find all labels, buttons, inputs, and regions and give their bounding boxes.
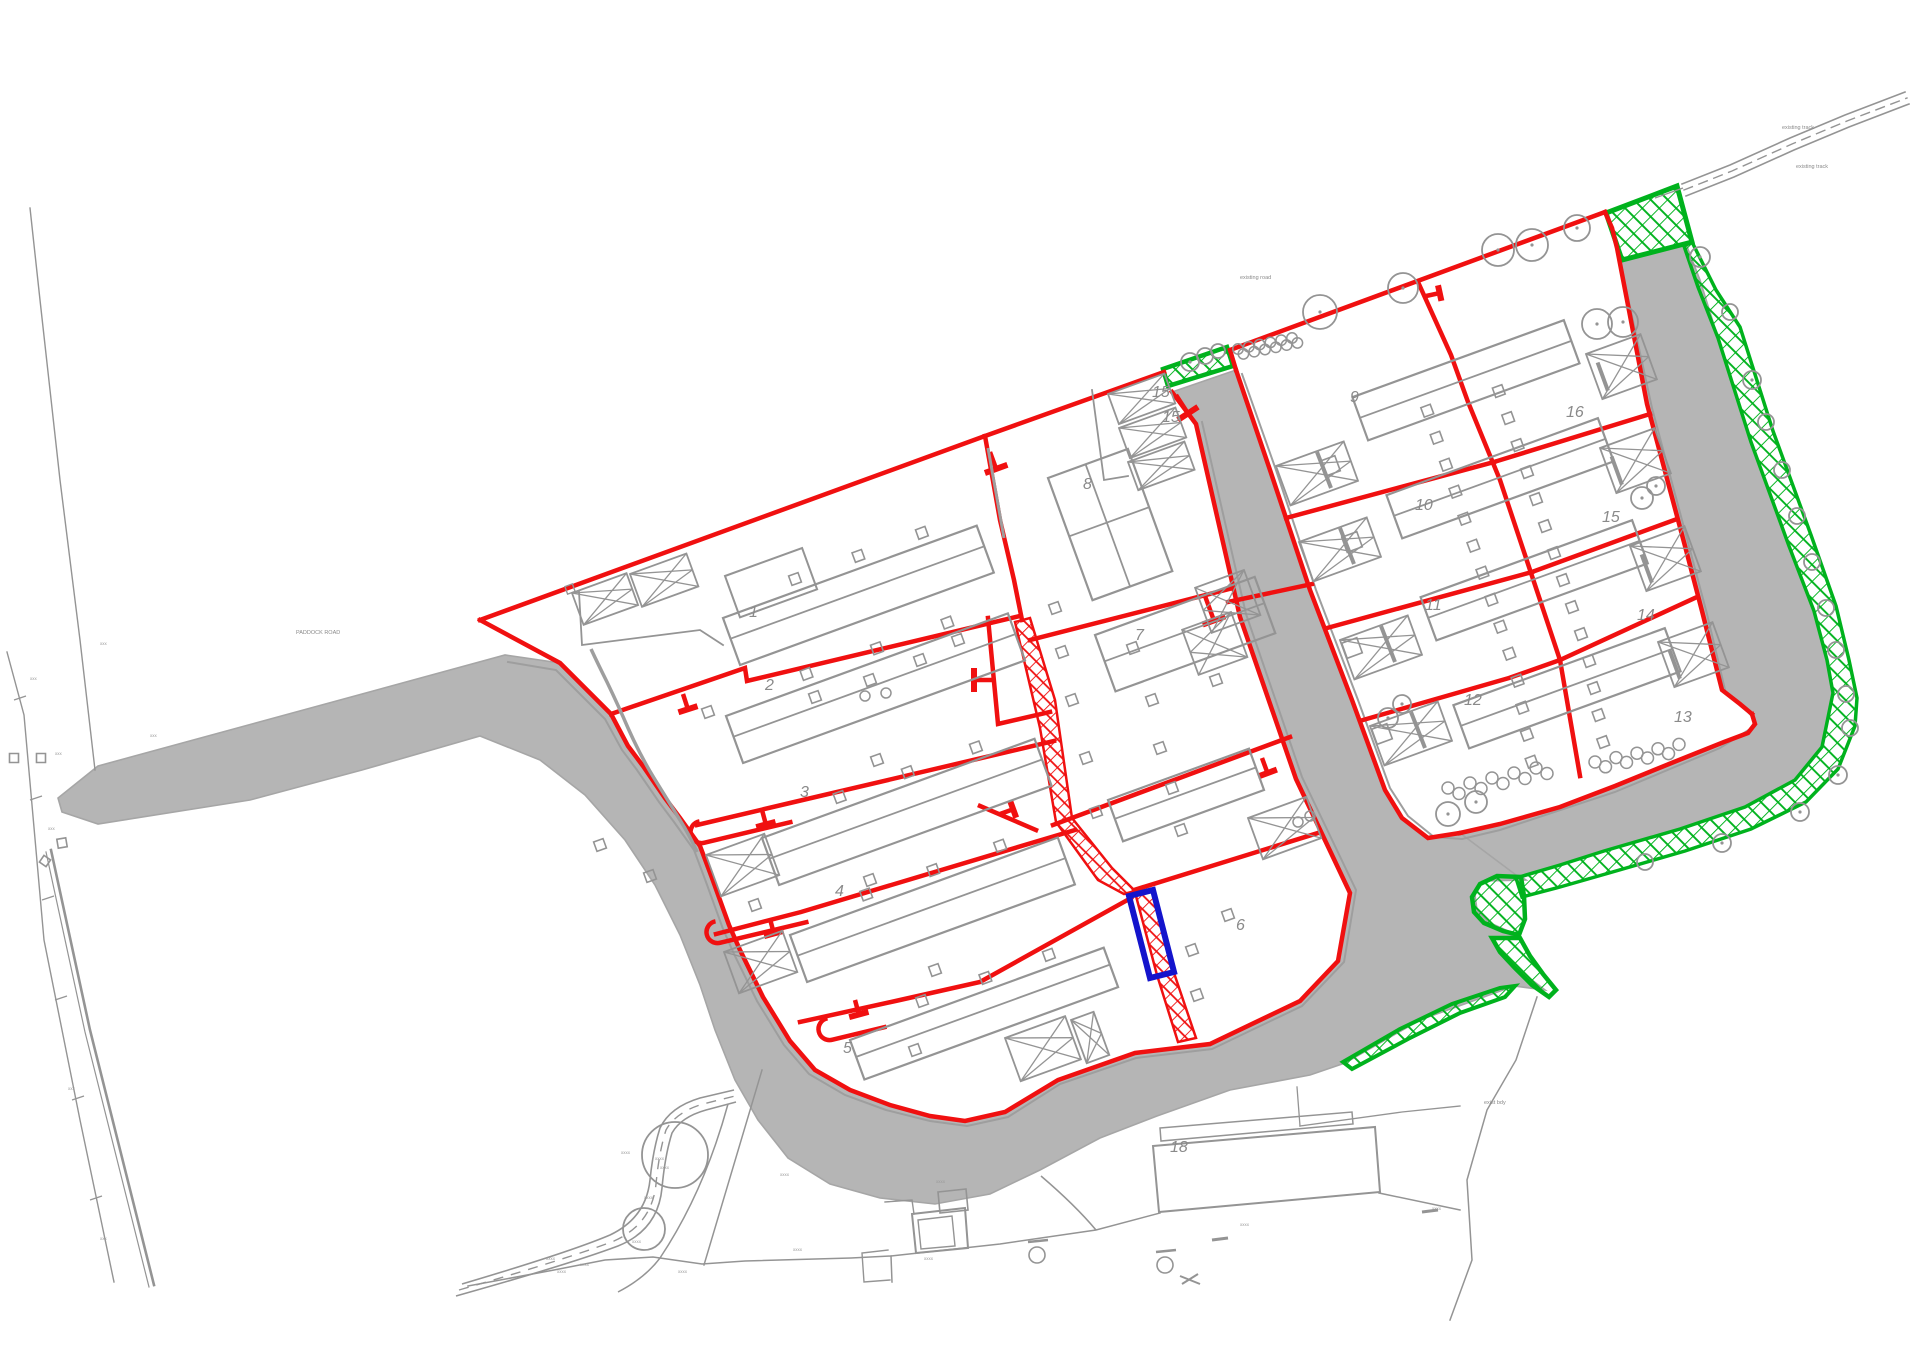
svg-text:PADDOCK ROAD: PADDOCK ROAD <box>296 630 340 636</box>
svg-text:xxxx: xxxx <box>644 1195 654 1200</box>
svg-text:14: 14 <box>1637 607 1655 624</box>
svg-text:6: 6 <box>1236 917 1245 934</box>
svg-text:xxxx: xxxx <box>924 1256 934 1261</box>
svg-text:xxxx: xxxx <box>793 1247 803 1252</box>
svg-text:existing track: existing track <box>1796 164 1828 170</box>
svg-text:exist bdy: exist bdy <box>1484 1100 1506 1106</box>
svg-text:1: 1 <box>749 604 758 621</box>
svg-text:xxxx: xxxx <box>1240 1222 1250 1227</box>
svg-text:15: 15 <box>1162 409 1180 426</box>
svg-text:xxxx: xxxx <box>936 1179 946 1184</box>
svg-text:xxxx: xxxx <box>655 1156 665 1161</box>
svg-text:existing track: existing track <box>1782 125 1814 131</box>
svg-text:12: 12 <box>1464 692 1482 709</box>
svg-text:xxxx: xxxx <box>580 1262 590 1267</box>
svg-text:5: 5 <box>843 1040 852 1057</box>
svg-text:xxx: xxx <box>150 733 158 738</box>
svg-text:7: 7 <box>1135 627 1145 644</box>
svg-text:2: 2 <box>764 677 774 694</box>
svg-text:3: 3 <box>800 784 809 801</box>
svg-text:13: 13 <box>1674 709 1692 726</box>
svg-text:8: 8 <box>1083 476 1092 493</box>
svg-text:xxx: xxx <box>30 676 38 681</box>
svg-text:xxx: xxx <box>100 1236 108 1241</box>
svg-text:xxxx: xxxx <box>632 1239 642 1244</box>
svg-text:15: 15 <box>1152 384 1170 401</box>
svg-text:xxxx: xxxx <box>780 1172 790 1177</box>
svg-text:16: 16 <box>1566 404 1584 421</box>
svg-text:xxxx: xxxx <box>621 1150 631 1155</box>
svg-text:xxxx: xxxx <box>546 1256 556 1261</box>
svg-text:xxxx: xxxx <box>660 1165 670 1170</box>
svg-text:10: 10 <box>1415 497 1433 514</box>
svg-text:existing road: existing road <box>1240 275 1271 281</box>
svg-text:xxx: xxx <box>100 641 108 646</box>
svg-text:xxxx: xxxx <box>678 1269 688 1274</box>
svg-text:9: 9 <box>1350 389 1359 406</box>
svg-text:xxxx: xxxx <box>1432 1206 1442 1211</box>
svg-text:xxx: xxx <box>48 826 56 831</box>
svg-text:11: 11 <box>1425 597 1442 614</box>
svg-text:xxx: xxx <box>68 1086 76 1091</box>
svg-text:15: 15 <box>1602 509 1620 526</box>
svg-text:18: 18 <box>1170 1139 1188 1156</box>
svg-text:xxx: xxx <box>55 751 63 756</box>
svg-text:4: 4 <box>835 883 844 900</box>
svg-text:xxxx: xxxx <box>557 1269 567 1274</box>
